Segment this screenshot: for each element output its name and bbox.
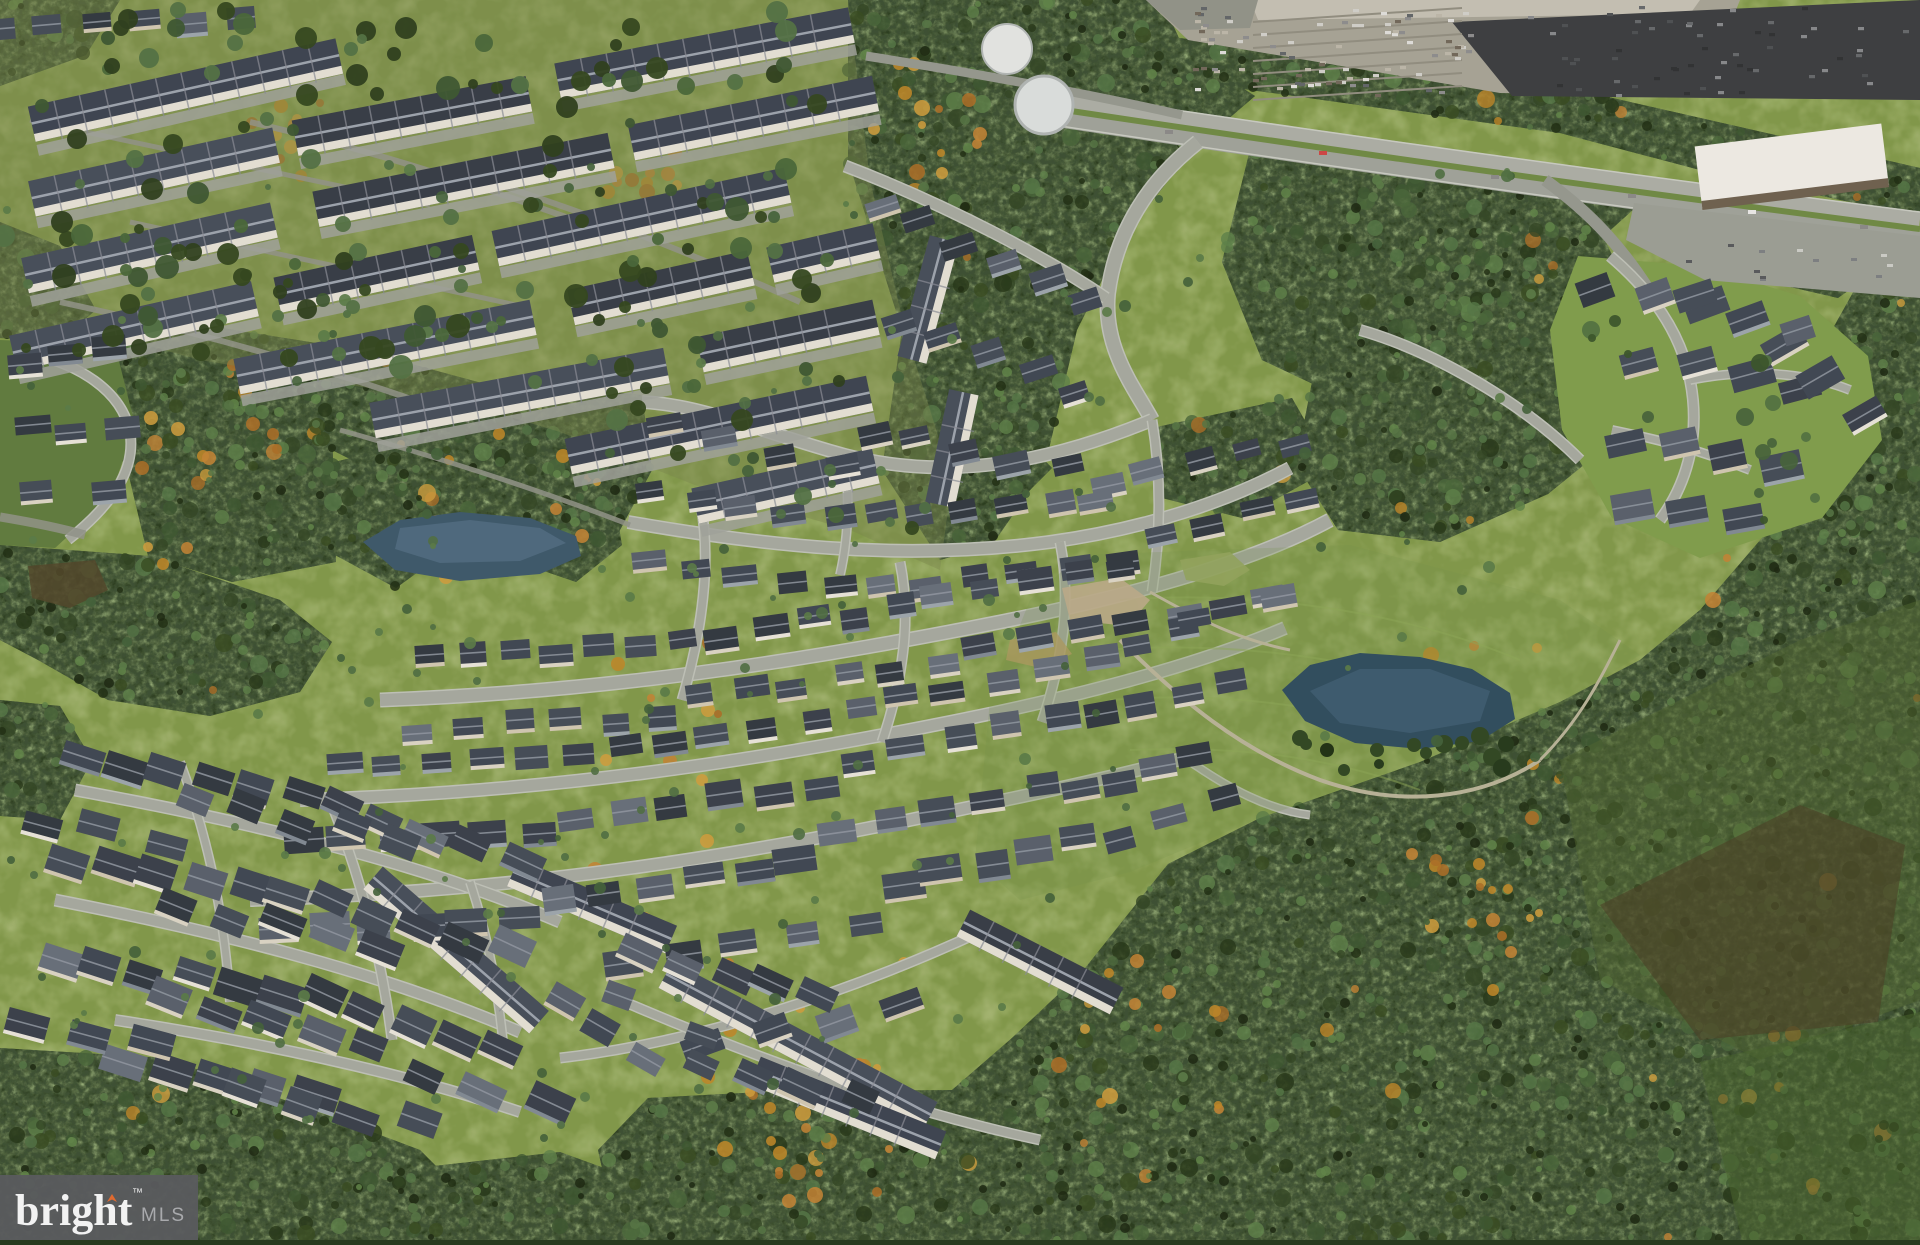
svg-text:bright: bright [15,1186,133,1235]
svg-text:™: ™ [132,1187,143,1199]
svg-text:MLS: MLS [141,1205,186,1226]
